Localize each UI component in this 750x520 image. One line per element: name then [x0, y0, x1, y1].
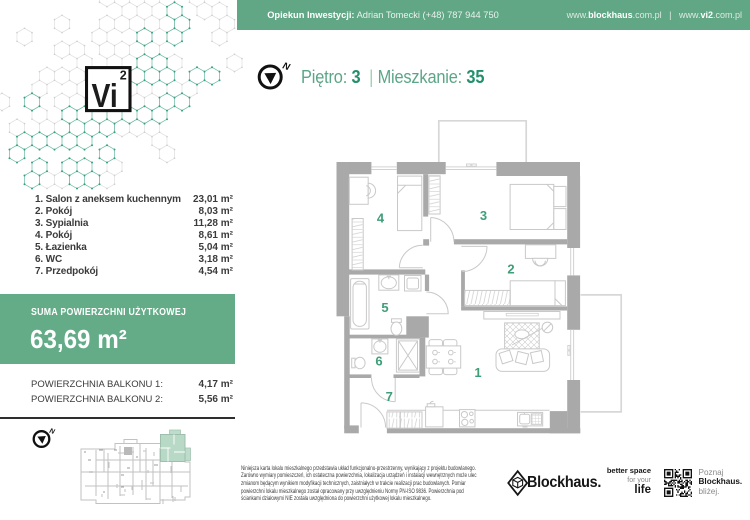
svg-text:5: 5 [381, 300, 388, 315]
svg-text:4: 4 [377, 211, 385, 226]
svg-text:3: 3 [480, 208, 487, 223]
svg-text:6: 6 [375, 354, 382, 369]
svg-text:7: 7 [386, 389, 393, 404]
svg-text:1: 1 [474, 365, 481, 380]
svg-text:2: 2 [507, 262, 514, 277]
